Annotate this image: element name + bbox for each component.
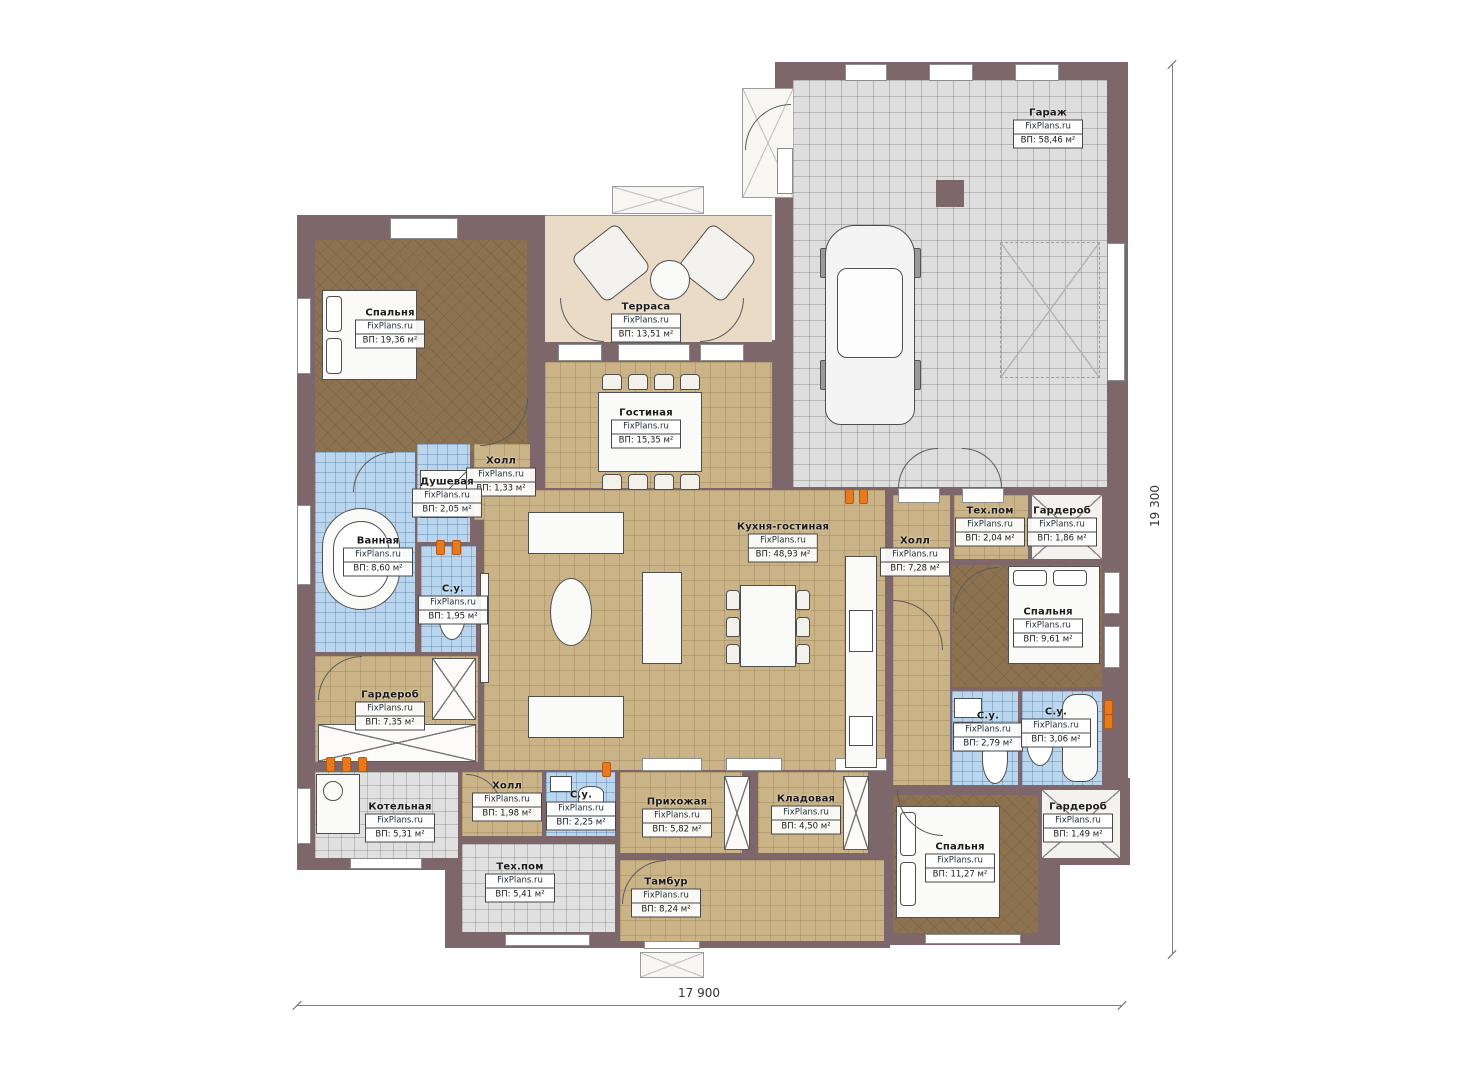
room-floor-tech-541 <box>462 844 615 932</box>
closet-unit <box>724 776 750 850</box>
coffee-table <box>550 578 592 646</box>
bathtub <box>1062 694 1098 782</box>
window <box>777 148 793 194</box>
kitchen-chair <box>726 590 740 610</box>
window <box>1107 243 1125 381</box>
window <box>644 941 700 949</box>
radiator-icon <box>859 489 868 504</box>
sink <box>954 722 982 742</box>
radiator-icon <box>358 757 367 772</box>
canopy <box>612 186 704 214</box>
window <box>726 758 782 771</box>
garage-pillar <box>936 180 964 207</box>
radiator-icon <box>342 757 351 772</box>
dining-chair <box>654 374 674 390</box>
wardrobe-unit <box>318 724 476 762</box>
dimension-line-height <box>1172 64 1173 954</box>
room-floor-wardrobe-149 <box>1042 790 1120 858</box>
window <box>962 488 1004 503</box>
window <box>1104 626 1120 668</box>
pillow <box>900 862 916 906</box>
bathtub-inner <box>333 521 389 597</box>
dining-chair <box>680 474 700 490</box>
stove <box>849 716 873 746</box>
window <box>898 488 940 503</box>
radiator-icon <box>436 540 445 555</box>
sofa <box>528 696 624 738</box>
dining-chair <box>602 474 622 490</box>
window <box>297 788 311 844</box>
dining-chair <box>628 474 648 490</box>
console <box>480 573 489 683</box>
parking-marking <box>1000 242 1100 378</box>
window <box>929 64 973 81</box>
kitchen-chair <box>796 590 810 610</box>
pillow <box>326 338 342 374</box>
window <box>505 934 590 946</box>
window <box>925 934 1021 944</box>
radiator-icon <box>326 757 335 772</box>
sink <box>954 698 982 718</box>
window <box>642 758 702 771</box>
car-roof <box>837 268 903 358</box>
sofa <box>642 572 682 664</box>
radiator-icon <box>845 489 854 504</box>
kitchen-chair <box>796 644 810 664</box>
dimension-width-label: 17 900 <box>678 986 720 1000</box>
window <box>845 64 887 81</box>
dimension-line-width <box>297 1005 1122 1006</box>
sofa <box>528 512 624 554</box>
window <box>350 858 422 869</box>
radiator-icon <box>1104 714 1113 729</box>
dining-chair <box>680 374 700 390</box>
window <box>390 218 458 239</box>
window <box>558 344 602 361</box>
dining-chair <box>654 474 674 490</box>
window <box>297 505 311 585</box>
window <box>1015 64 1059 81</box>
window <box>1104 572 1120 614</box>
window <box>618 344 690 361</box>
sink <box>550 776 572 792</box>
kitchen-chair <box>796 617 810 637</box>
canopy <box>640 952 704 978</box>
window <box>297 298 311 374</box>
kitchen-chair <box>726 617 740 637</box>
radiator-icon <box>602 762 611 777</box>
radiator-icon <box>1104 700 1113 715</box>
dining-table <box>598 392 702 472</box>
kitchen-sink <box>849 610 873 652</box>
room-floor-tech-204 <box>954 495 1028 559</box>
shower-tray <box>420 470 468 518</box>
floor-plan: 17 900 19 300 СпальняFixPlans.ruВП: 19,3… <box>0 0 1474 1080</box>
radiator-icon <box>452 540 461 555</box>
closet-unit <box>843 776 869 850</box>
room-floor-wardrobe-186 <box>1032 495 1102 559</box>
wardrobe-unit <box>432 658 476 720</box>
dining-chair <box>602 374 622 390</box>
pillow <box>1053 570 1087 586</box>
pillow <box>326 296 342 332</box>
window <box>700 344 744 361</box>
kitchen-chair <box>726 644 740 664</box>
boiler-dial <box>323 781 343 801</box>
pillow <box>1013 570 1047 586</box>
kitchen-table <box>740 585 796 667</box>
dining-chair <box>628 374 648 390</box>
dimension-height-label: 19 300 <box>1148 485 1162 527</box>
terrace-table <box>650 260 690 300</box>
